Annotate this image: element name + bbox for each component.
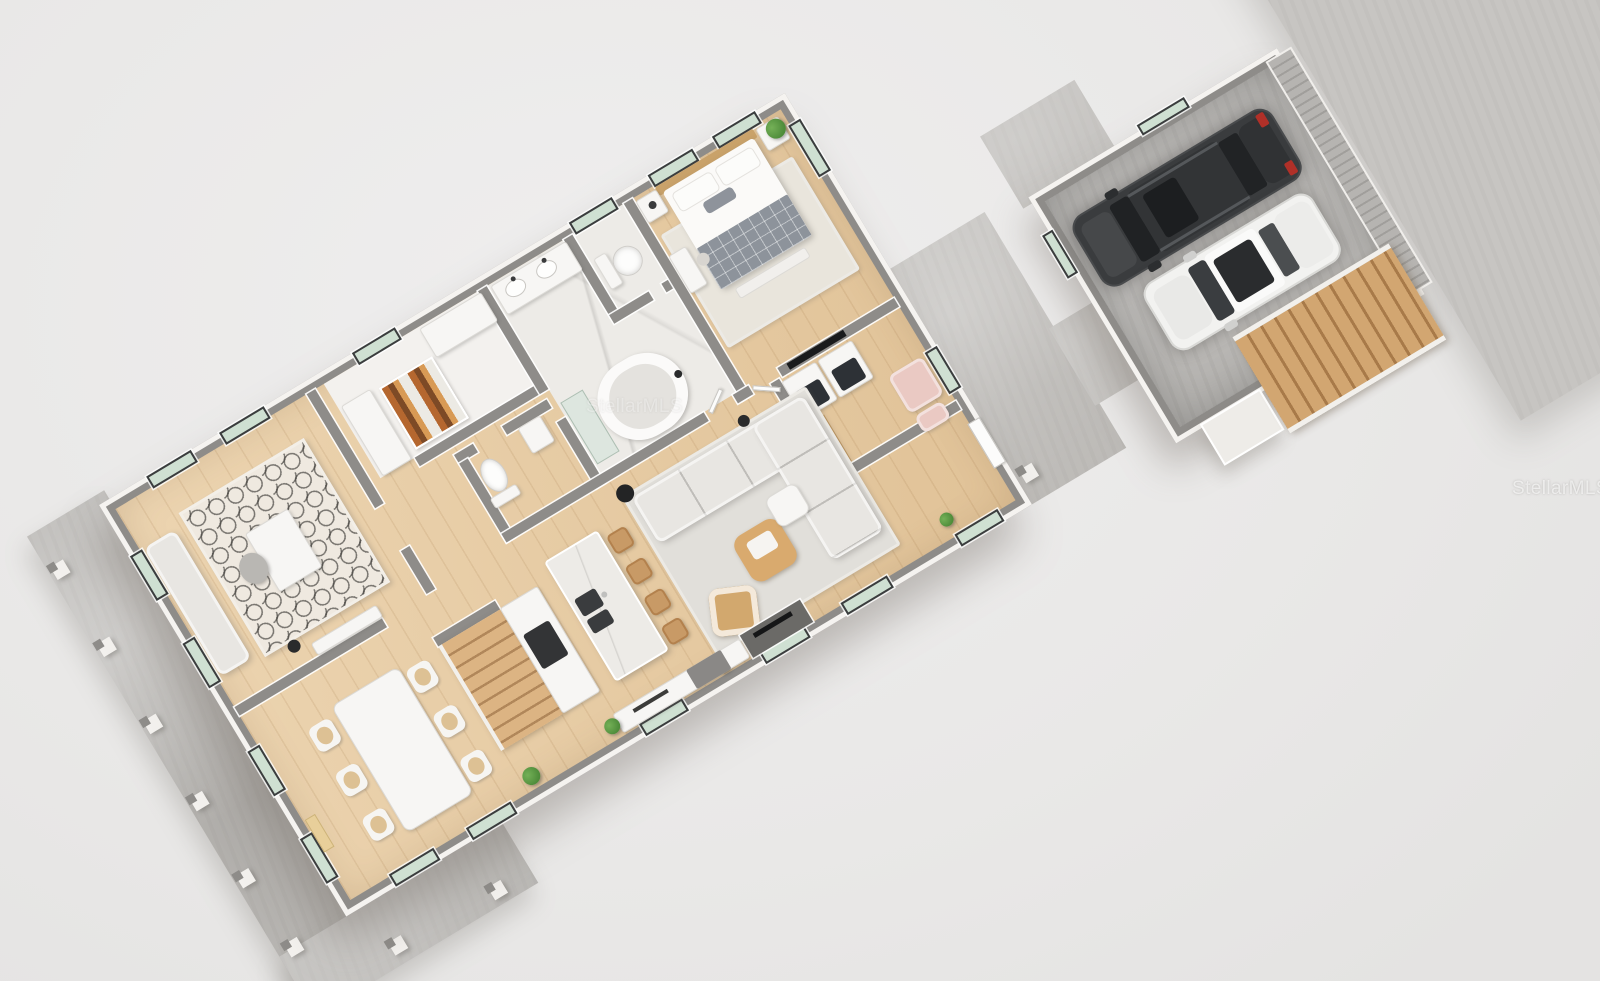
rotated-plan — [99, 500, 113, 514]
watermark: StellarMLS — [1512, 478, 1600, 500]
floor-plan-render: StellarMLS StellarMLS — [0, 0, 1600, 981]
watermark: StellarMLS — [586, 396, 683, 418]
